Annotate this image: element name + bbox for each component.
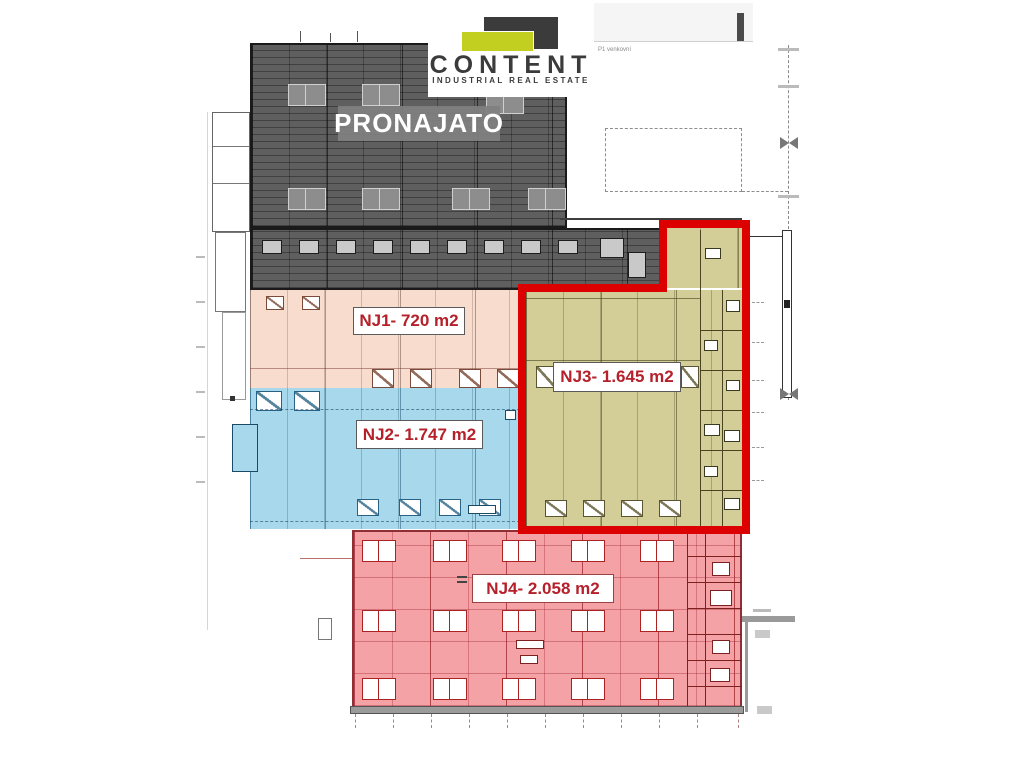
plan-fixture [726,380,740,391]
door-icon [256,391,282,411]
door-icon [362,188,400,210]
label-nj3-text: NJ3- 1.645 m2 [560,367,673,387]
grid-stub [469,714,470,728]
grid-stub [507,714,508,728]
floorplan-canvas: P1 venkovní CONTENT INDUSTRIAL REAL ESTA… [0,0,1024,768]
door-icon [288,84,326,106]
plan-fixture [468,505,496,514]
dimension-tick [300,31,301,42]
dimension-tick [196,346,205,348]
site-boundary-line [742,616,795,622]
annotation-box [755,630,770,638]
top-band-post [737,13,744,41]
door-icon [410,369,432,388]
door-icon [497,369,519,388]
door-icon [433,540,467,562]
zone-nj3-top [663,226,744,288]
brand-logo: CONTENT INDUSTRIAL REAL ESTATE [428,0,594,97]
plan-dashed-line [752,302,764,303]
grid-stub [697,714,698,728]
door-icon [502,678,536,700]
plan-wall-line [300,558,352,559]
plan-fixture [516,640,544,649]
logo-mark-dark-leg [534,31,558,49]
door-icon [521,240,541,254]
door-icon [266,296,284,310]
door-icon [640,540,674,562]
plan-fixture [724,498,740,510]
door-icon [640,610,674,632]
door-icon [362,84,400,106]
rented-overlay-label: PRONAJATO [338,106,500,141]
door-icon [336,240,356,254]
plan-dashed-line [250,409,525,410]
door-icon [459,369,481,388]
grid-stub [738,714,739,728]
door-icon [357,499,379,516]
grid-stub [393,714,394,728]
plan-wall-line [526,298,701,299]
dimension-tick [196,256,205,258]
dimension-tick [330,33,331,42]
door-icon [362,678,396,700]
door-icon [571,610,605,632]
nj3-highlight-top [659,220,750,228]
plan-wall-line [687,582,742,583]
plan-fixture [505,410,516,420]
plan-note: P1 venkovní [598,47,631,53]
door-icon [262,240,282,254]
annex-line [213,146,249,147]
site-boundary-line [745,622,748,712]
annex-outline-1 [212,112,250,232]
section-marker-icon [780,388,798,400]
plan-wall-line [687,532,688,706]
door-icon [373,240,393,254]
door-icon [484,240,504,254]
door-icon [545,500,567,517]
plan-mark [784,300,790,308]
plan-mark [457,576,467,578]
door-icon [640,678,674,700]
plan-wall-line [700,450,744,451]
door-icon [452,188,490,210]
annex-outline-2 [215,232,246,312]
door-icon [372,369,394,388]
logo-mark-dark [484,17,558,31]
plan-wall-line [526,360,701,361]
door-icon [600,238,624,258]
plan-fixture [520,655,538,664]
plan-dashed-line [752,380,764,381]
plan-wall-line [722,290,723,528]
plan-mark [230,396,235,401]
door-icon [502,610,536,632]
dimension-tick [357,31,358,42]
dimension-tick [196,301,205,303]
annotation-box [757,706,772,714]
door-icon [571,540,605,562]
door-icon [294,391,320,411]
plan-wall-line [687,686,742,687]
nj4-base-strip [350,706,744,714]
door-icon [299,240,319,254]
zone-nj3-main [526,290,744,528]
label-nj4-text: NJ4- 2.058 m2 [486,579,599,599]
door-icon [571,678,605,700]
plan-dashed-line [250,521,525,522]
label-nj2-text: NJ2- 1.747 m2 [363,425,476,445]
door-icon [628,252,646,278]
plan-wall-line [687,660,742,661]
grid-stub [355,714,356,728]
annotation-smudge [753,609,771,612]
plan-wall-line [700,490,744,491]
plan-wall-line [705,532,706,706]
plan-wall-line [700,330,744,331]
door-icon [502,540,536,562]
section-marker-icon [780,137,798,149]
plan-fixture [318,618,332,640]
door-icon [558,240,578,254]
door-icon [528,188,566,210]
plan-dashed-line [752,447,764,448]
door-icon [410,240,430,254]
dimension-tick [196,391,205,393]
plan-dashed-line [752,480,764,481]
label-nj4: NJ4- 2.058 m2 [472,574,614,603]
door-icon [681,366,699,388]
plan-fixture [704,466,718,477]
door-icon [447,240,467,254]
plan-fixture [710,668,730,682]
grid-stub [545,714,546,728]
grid-stub [583,714,584,728]
plan-dashed-line [752,412,764,413]
door-icon [439,499,461,516]
plan-fixture [712,562,730,576]
nj3-highlight-inner-v [659,220,667,292]
nj3-highlight-inner-h [518,284,667,292]
plan-fixture [726,300,740,312]
plan-dashed-outline [605,128,742,192]
door-icon [288,188,326,210]
plan-wall-line [687,634,742,635]
dimension-tick [196,436,205,438]
plan-wall-line [687,556,742,557]
grid-stub [431,714,432,728]
annex-line [213,183,249,184]
dimension-chain-left [207,112,208,630]
dimension-tick [778,195,799,198]
grid-stub [621,714,622,728]
door-icon [659,500,681,517]
plan-wall-line [687,608,742,609]
logo-mark-lime [462,32,533,51]
zone-nj4 [352,530,742,708]
plan-mark [457,581,467,583]
plan-fixture [705,248,721,259]
plan-fixture [704,424,720,436]
annex-outline-3 [222,312,246,400]
label-nj2: NJ2- 1.747 m2 [356,420,483,449]
brand-tagline: INDUSTRIAL REAL ESTATE [428,76,594,85]
plan-wall-line [700,230,701,528]
dimension-tick [196,481,205,483]
plan-fixture [712,640,730,654]
door-icon [399,499,421,516]
plan-dashed-line [742,191,788,192]
plan-fixture [710,590,732,606]
plan-wall-line [748,236,782,237]
door-icon [433,678,467,700]
nj3-highlight-bottom [518,526,750,534]
label-nj1: NJ1- 720 m2 [353,307,465,335]
plan-dashed-line [752,342,764,343]
dimension-tick [778,85,799,88]
wall-section [782,230,792,398]
door-icon [583,500,605,517]
nj3-highlight-left [518,284,526,534]
door-icon [302,296,320,310]
plan-wall-line [700,370,744,371]
nj3-highlight-right [742,220,750,534]
door-icon [433,610,467,632]
dimension-tick [778,48,799,51]
plan-fixture [724,430,740,442]
door-icon [362,610,396,632]
plan-fixture [704,340,718,351]
zone-nj2-annex [232,424,258,472]
plan-wall-line [700,410,744,411]
label-nj1-text: NJ1- 720 m2 [359,311,458,331]
door-icon [621,500,643,517]
door-icon [362,540,396,562]
grid-stub [659,714,660,728]
label-nj3: NJ3- 1.645 m2 [553,362,681,392]
